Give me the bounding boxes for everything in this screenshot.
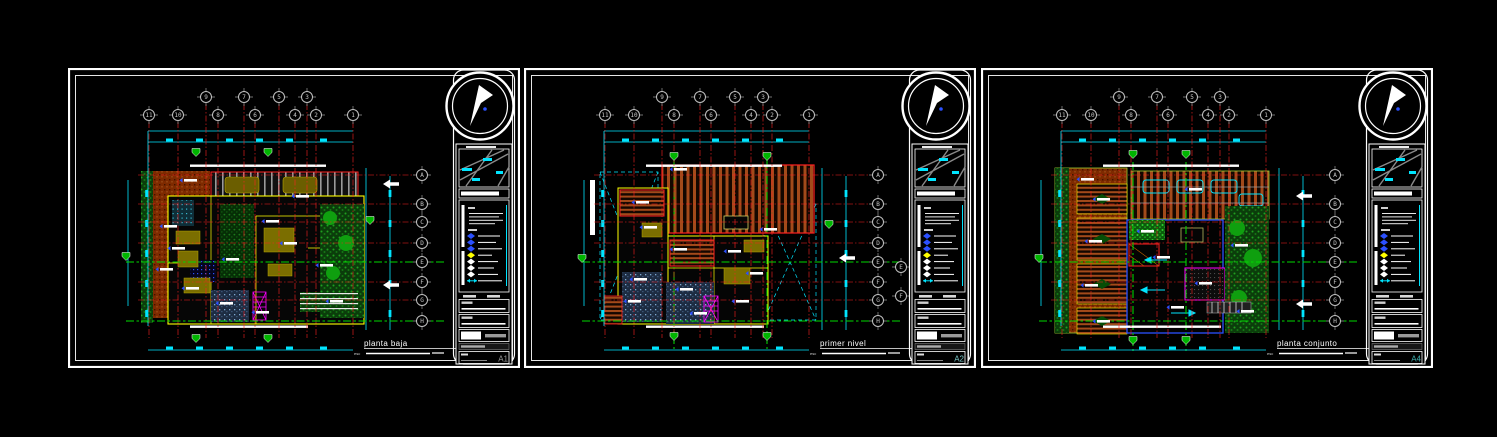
svg-text:3: 3 (761, 94, 765, 101)
title-block (1360, 70, 1428, 364)
roof-bands (1077, 184, 1127, 334)
svg-text:11: 11 (1058, 112, 1066, 119)
svg-text:B: B (1333, 201, 1337, 208)
cad-canvas: 9753111086421ABCDEFGH planta baja esc A1 (0, 0, 1497, 437)
plan-scale-label: esc (810, 351, 816, 356)
drawing-sheet-2[interactable]: 9753111086421ABCDEFGHEF primer nivel esc… (524, 68, 976, 368)
svg-text:B: B (420, 201, 424, 208)
svg-text:5: 5 (277, 94, 281, 101)
svg-text:E: E (876, 259, 880, 266)
svg-text:3: 3 (1218, 94, 1222, 101)
svg-text:F: F (876, 279, 880, 286)
svg-text:6: 6 (253, 112, 257, 119)
sheet-number: A4 (1411, 355, 1421, 364)
plan-label: primer nivel esc (810, 339, 912, 356)
svg-text:E: E (1333, 259, 1337, 266)
svg-text:4: 4 (293, 112, 297, 119)
svg-text:D: D (1333, 240, 1337, 247)
svg-text:C: C (420, 219, 424, 226)
svg-text:7: 7 (242, 94, 246, 101)
plan-label: planta baja esc (354, 339, 456, 356)
svg-text:7: 7 (698, 94, 702, 101)
svg-text:H: H (1333, 318, 1337, 325)
title-block (447, 70, 515, 364)
drawing-sheet-1[interactable]: 9753111086421ABCDEFGH planta baja esc A1 (68, 68, 520, 368)
svg-text:10: 10 (630, 112, 638, 119)
svg-text:6: 6 (1166, 112, 1170, 119)
svg-text:1: 1 (351, 112, 355, 119)
title-block (903, 70, 971, 364)
svg-text:E: E (899, 264, 903, 271)
plan-title: primer nivel (820, 339, 866, 348)
svg-text:F: F (1333, 279, 1337, 286)
svg-text:D: D (420, 240, 424, 247)
svg-text:10: 10 (174, 112, 182, 119)
plan-scale-label: esc (1267, 351, 1273, 356)
svg-text:C: C (876, 219, 880, 226)
svg-text:10: 10 (1087, 112, 1095, 119)
svg-text:1: 1 (807, 112, 811, 119)
svg-text:2: 2 (770, 112, 774, 119)
svg-text:D: D (876, 240, 880, 247)
svg-text:2: 2 (314, 112, 318, 119)
svg-text:4: 4 (1206, 112, 1210, 119)
svg-text:8: 8 (216, 112, 220, 119)
svg-text:7: 7 (1155, 94, 1159, 101)
svg-text:9: 9 (1117, 94, 1121, 101)
svg-text:A: A (1333, 172, 1337, 179)
svg-text:8: 8 (1129, 112, 1133, 119)
svg-text:F: F (420, 279, 424, 286)
svg-text:1: 1 (1264, 112, 1268, 119)
plan-title: planta conjunto (1277, 339, 1337, 348)
svg-text:G: G (876, 297, 880, 304)
plan-drawing (590, 160, 816, 352)
plan-label: planta conjunto esc (1267, 339, 1369, 356)
svg-text:11: 11 (145, 112, 153, 119)
svg-text:9: 9 (204, 94, 208, 101)
sheet-number: A1 (498, 355, 508, 364)
sheet-number: A2 (954, 355, 964, 364)
svg-text:9: 9 (660, 94, 664, 101)
svg-text:11: 11 (601, 112, 609, 119)
svg-text:8: 8 (672, 112, 676, 119)
svg-text:H: H (876, 318, 880, 325)
svg-text:C: C (1333, 219, 1337, 226)
svg-text:G: G (420, 297, 424, 304)
svg-text:5: 5 (733, 94, 737, 101)
svg-text:3: 3 (305, 94, 309, 101)
svg-text:6: 6 (709, 112, 713, 119)
plan-title: planta baja (364, 339, 408, 348)
svg-text:A: A (876, 172, 880, 179)
svg-text:G: G (1333, 297, 1337, 304)
svg-text:5: 5 (1190, 94, 1194, 101)
svg-text:B: B (876, 201, 880, 208)
svg-text:A: A (420, 172, 424, 179)
plan-scale-label: esc (354, 351, 360, 356)
svg-text:4: 4 (749, 112, 753, 119)
svg-text:H: H (420, 318, 424, 325)
drawing-sheet-3[interactable]: 9753111086421ABCDEFGH planta conjunto es… (981, 68, 1433, 368)
svg-text:F: F (899, 293, 903, 300)
svg-text:E: E (420, 259, 424, 266)
svg-text:2: 2 (1227, 112, 1231, 119)
